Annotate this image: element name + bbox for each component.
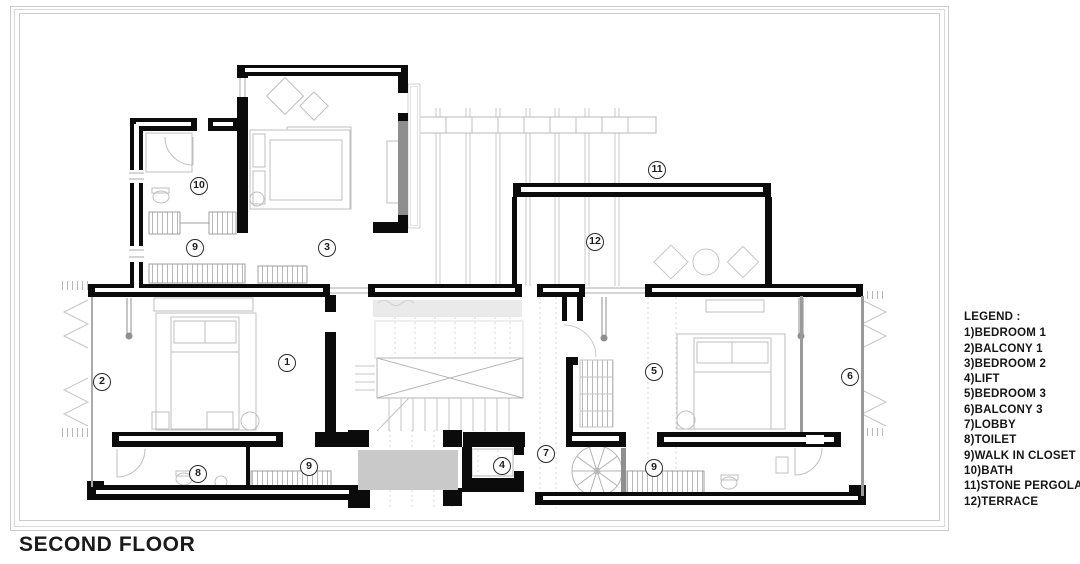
legend-item-terrace: 12)TERRACE (964, 495, 1080, 510)
room-marker-toilet: 8 (189, 465, 207, 483)
legend-item-bedroom2: 3)BEDROOM 2 (964, 357, 1080, 372)
bedroom2-furniture (250, 78, 401, 209)
balcony1-louvers (62, 281, 88, 437)
room-marker-lobby: 7 (537, 445, 555, 463)
spiral-stair (572, 446, 622, 496)
walkin-closet-top (149, 212, 307, 283)
legend-item-lift: 4)LIFT (964, 372, 1080, 387)
legend-item-toilet: 8)TOILET (964, 433, 1080, 448)
toilet-fixtures (117, 449, 227, 488)
room-marker-balcony1: 2 (93, 373, 111, 391)
legend-item-bath: 10)BATH (964, 464, 1080, 479)
stair-core (355, 300, 523, 431)
balcony3-louvers (862, 291, 886, 436)
legend-item-bedroom1: 1)BEDROOM 1 (964, 326, 1080, 341)
floor-plan-drawing (0, 0, 1080, 564)
stone-pergola-beam (420, 117, 656, 133)
room-marker-walkin-closet-left: 9 (300, 458, 318, 476)
terrace-furniture (654, 245, 759, 279)
bath-fixtures (146, 133, 193, 203)
roof-overhang-line (408, 84, 420, 228)
room-marker-stone-pergola: 11 (648, 161, 666, 179)
bridge-shadow-fill (358, 450, 458, 490)
legend-item-bedroom3: 5)BEDROOM 3 (964, 387, 1080, 402)
legend: LEGEND : 1)BEDROOM 1 2)BALCONY 1 3)BEDRO… (964, 310, 1080, 510)
lobby-door-arc (564, 325, 596, 357)
bedroom3-bath-fixtures (721, 448, 822, 489)
legend-item-walkin-closet: 9)WALK IN CLOSET (964, 449, 1080, 464)
bedroom1-sliding-door (126, 298, 133, 340)
lobby-daybed (580, 360, 613, 427)
room-marker-balcony3: 6 (841, 368, 859, 386)
room-marker-bedroom3: 5 (645, 363, 663, 381)
room-marker-lift: 4 (493, 457, 511, 475)
legend-item-balcony3: 6)BALCONY 3 (964, 403, 1080, 418)
legend-heading: LEGEND : (964, 310, 1080, 325)
walkin-closet-right (627, 471, 704, 493)
legend-item-stone-pergola: 11)STONE PERGOLA (964, 479, 1080, 494)
floor-plan-sheet: 10 9 3 11 12 2 1 5 6 8 9 4 7 9 LEGEND : … (0, 0, 1080, 564)
bedroom3-sliding-door (601, 297, 805, 342)
room-marker-walkin-closet-top: 9 (186, 239, 204, 257)
room-marker-walkin-closet-right: 9 (645, 459, 663, 477)
room-marker-bedroom2: 3 (318, 239, 336, 257)
room-marker-terrace: 12 (586, 233, 604, 251)
floor-title: SECOND FLOOR (19, 533, 195, 557)
room-marker-bath: 10 (190, 177, 208, 195)
legend-item-lobby: 7)LOBBY (964, 418, 1080, 433)
legend-item-balcony1: 2)BALCONY 1 (964, 342, 1080, 357)
bedroom1-furniture (152, 298, 259, 430)
bedroom3-furniture (677, 300, 785, 429)
room-marker-bedroom1: 1 (278, 354, 296, 372)
